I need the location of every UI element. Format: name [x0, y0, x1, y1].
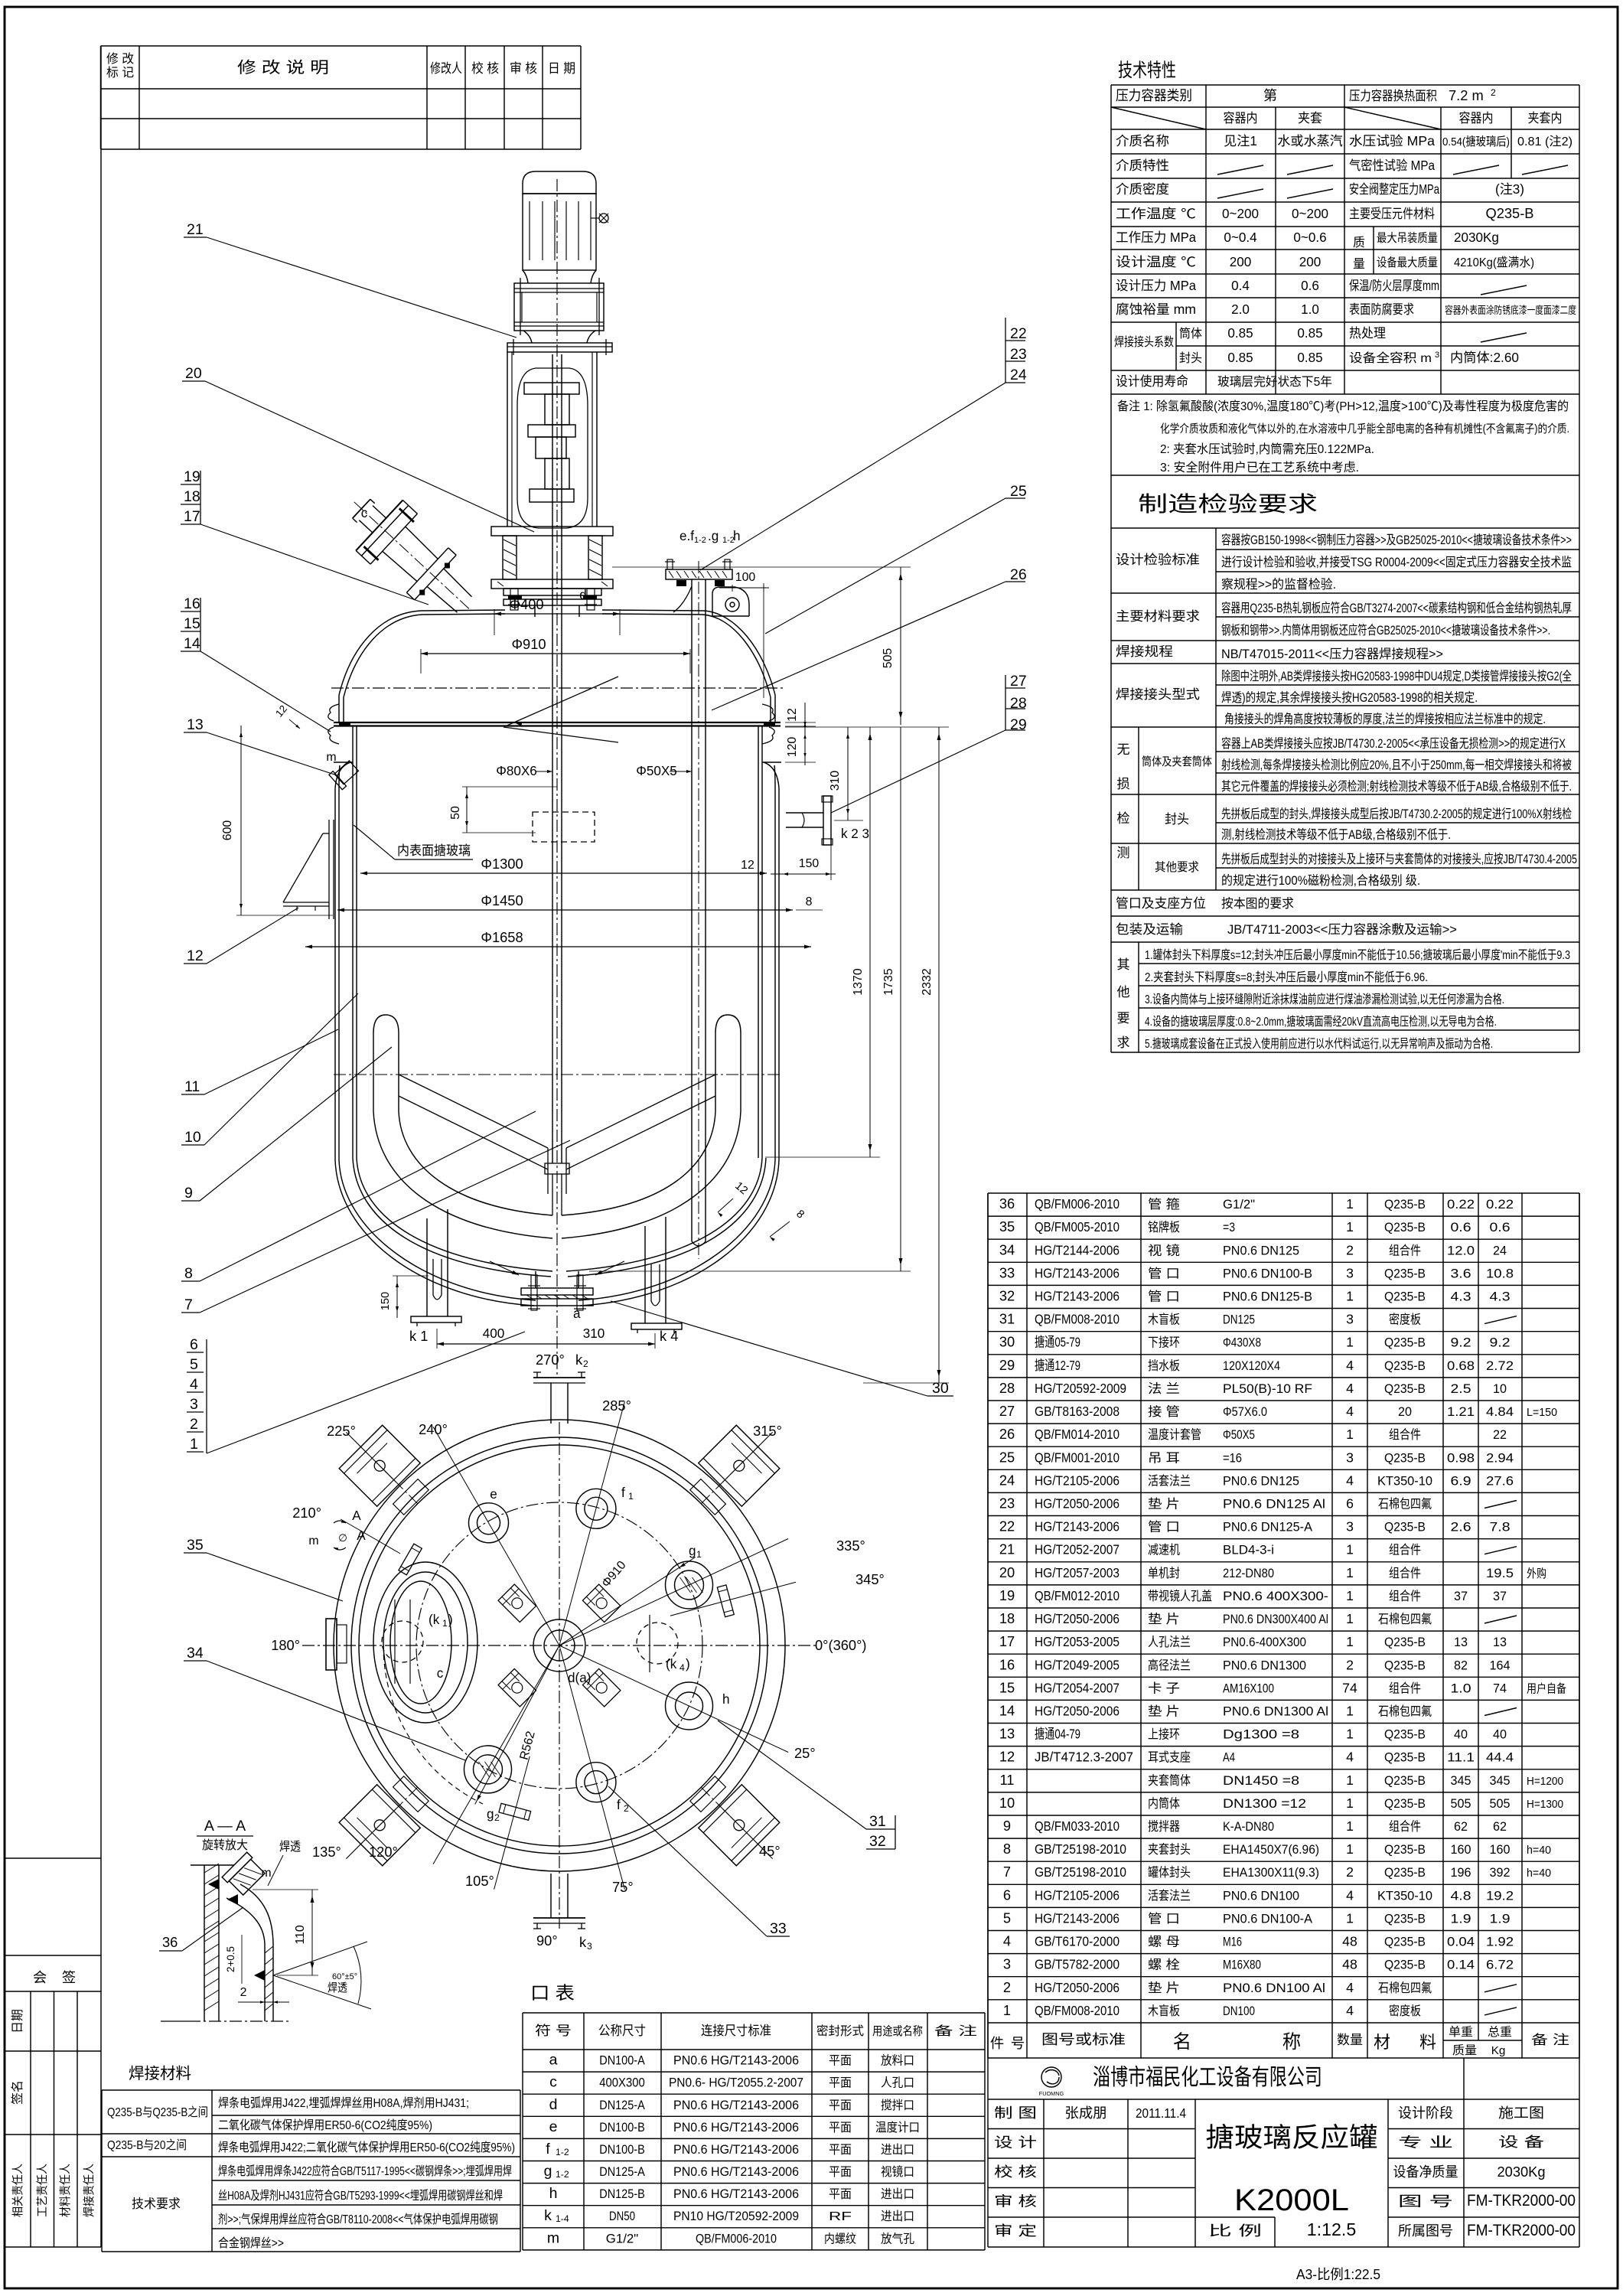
svg-text:A4: A4: [1223, 1751, 1235, 1765]
svg-text:减速机: 减速机: [1148, 1543, 1180, 1557]
svg-text:∅: ∅: [338, 1532, 347, 1544]
svg-text:25: 25: [999, 1449, 1015, 1465]
svg-text:平面: 平面: [829, 2122, 852, 2135]
svg-text:视 镜: 视 镜: [1148, 1243, 1180, 1257]
svg-text:Kg: Kg: [1491, 2044, 1506, 2057]
svg-text:焊接接头系数: 焊接接头系数: [1114, 335, 1174, 349]
svg-text:1: 1: [1346, 1289, 1354, 1304]
svg-text:DN125-A: DN125-A: [599, 2099, 645, 2112]
svg-text:g: g: [487, 1807, 494, 1821]
svg-text:筒体: 筒体: [1179, 327, 1202, 341]
svg-text:6.72: 6.72: [1486, 1958, 1514, 1972]
svg-text:3.设备内筒体与上接环缝隙附近涂抹煤油前应进行煤油渗漏检测试: 3.设备内筒体与上接环缝隙附近涂抹煤油前应进行煤油渗漏检测试验,以无任何渗漏为合…: [1145, 992, 1504, 1006]
svg-text:3: 3: [1346, 1519, 1354, 1534]
svg-text:3: 3: [1346, 1312, 1354, 1327]
svg-text:平面: 平面: [829, 2188, 852, 2201]
svg-text:345: 345: [1451, 1774, 1471, 1788]
svg-text:号: 号: [1011, 2035, 1025, 2051]
svg-text:18: 18: [999, 1610, 1015, 1626]
svg-text:HG/T20592-2009: HG/T20592-2009: [1035, 1381, 1126, 1396]
svg-text:审 定: 审 定: [994, 2223, 1037, 2239]
svg-text:施工图: 施工图: [1498, 2105, 1544, 2121]
svg-text:0.14: 0.14: [1447, 1958, 1475, 1972]
svg-text:标 记: 标 记: [106, 66, 134, 80]
svg-text:人孔法兰: 人孔法兰: [1148, 1635, 1191, 1649]
svg-text:Q235-B: Q235-B: [1384, 1198, 1426, 1212]
svg-text:0.6: 0.6: [1301, 279, 1319, 293]
svg-text:容器内: 容器内: [1459, 111, 1494, 126]
svg-text:活套法兰: 活套法兰: [1148, 1473, 1191, 1488]
svg-text:h: h: [549, 2185, 558, 2202]
svg-text:4: 4: [1346, 1750, 1354, 1765]
svg-text:0.98: 0.98: [1447, 1451, 1475, 1465]
svg-text:210°: 210°: [292, 1505, 321, 1521]
svg-text:内螺纹: 内螺纹: [824, 2232, 856, 2245]
svg-text:张成朋: 张成朋: [1065, 2105, 1107, 2121]
svg-text:1-4: 1-4: [556, 2213, 569, 2224]
svg-text:0~200: 0~200: [1222, 207, 1259, 221]
svg-text:4210Kg(盛满水): 4210Kg(盛满水): [1454, 256, 1534, 269]
svg-text:50: 50: [449, 806, 462, 820]
svg-text:2332: 2332: [921, 968, 934, 996]
svg-text:4.3: 4.3: [1490, 1290, 1511, 1304]
svg-text:管口及支座方位: 管口及支座方位: [1116, 896, 1206, 911]
svg-text:NB/T47015-2011<<压力容器焊接规程>>: NB/T47015-2011<<压力容器焊接规程>>: [1221, 647, 1443, 661]
svg-text:管 口: 管 口: [1148, 1912, 1180, 1926]
svg-text:HG/T2143-2006: HG/T2143-2006: [1035, 1289, 1119, 1304]
svg-text:设计阶段: 设计阶段: [1398, 2105, 1453, 2121]
svg-text:6: 6: [190, 1336, 198, 1353]
svg-text:制 图: 制 图: [994, 2105, 1037, 2121]
svg-text:连接尺寸标准: 连接尺寸标准: [701, 2024, 771, 2038]
svg-text:组合件: 组合件: [1389, 1243, 1421, 1257]
svg-text:专 业: 专 业: [1398, 2135, 1453, 2151]
svg-text:27.6: 27.6: [1486, 1474, 1514, 1488]
svg-text:160: 160: [1490, 1843, 1511, 1857]
svg-text:1.9: 1.9: [1451, 1913, 1471, 1926]
svg-text:介质名称: 介质名称: [1116, 134, 1169, 148]
svg-text:PN0.6 HG/T2143-2006: PN0.6 HG/T2143-2006: [673, 2054, 799, 2068]
svg-text:1: 1: [1346, 1818, 1354, 1834]
svg-text:先拼板后成型的封头,焊接接头成型后按JB/T4730.2-2: 先拼板后成型的封头,焊接接头成型后按JB/T4730.2-2005的规定进行10…: [1221, 807, 1572, 821]
svg-text:110: 110: [294, 1925, 307, 1944]
svg-text:水压试验 MPa: 水压试验 MPa: [1349, 134, 1435, 148]
svg-text:介质密度: 介质密度: [1116, 182, 1169, 197]
svg-text:设备最大质量: 设备最大质量: [1377, 256, 1438, 269]
svg-text:QB/FM014-2010: QB/FM014-2010: [1035, 1427, 1119, 1442]
svg-text:高径法兰: 高径法兰: [1148, 1658, 1191, 1672]
svg-text:8: 8: [1003, 1841, 1011, 1857]
svg-text:0~0.6: 0~0.6: [1293, 230, 1326, 245]
svg-text:36: 36: [162, 1934, 178, 1950]
svg-text:5: 5: [1003, 1910, 1011, 1926]
svg-text:1: 1: [442, 1618, 448, 1629]
svg-text:Q235-B: Q235-B: [1384, 1936, 1426, 1949]
svg-text:2: 2: [240, 1986, 247, 1999]
svg-text:搪通05-79: 搪通05-79: [1035, 1335, 1080, 1350]
svg-text:组合件: 组合件: [1389, 1589, 1421, 1603]
svg-text:DN50: DN50: [609, 2210, 635, 2223]
svg-text:d(a): d(a): [568, 1671, 591, 1685]
svg-text:石棉包四氟: 石棉包四氟: [1378, 1981, 1432, 1995]
svg-text:搅拌口: 搅拌口: [881, 2099, 914, 2112]
svg-text:h=40: h=40: [1527, 1867, 1551, 1880]
svg-text:33: 33: [999, 1264, 1015, 1280]
svg-text:345: 345: [1490, 1774, 1511, 1788]
svg-text:合金钢焊丝>>: 合金钢焊丝>>: [218, 2236, 284, 2250]
svg-text:察规程>>的监督检验.: 察规程>>的监督检验.: [1221, 577, 1336, 592]
svg-text:Q235-B: Q235-B: [1384, 1797, 1426, 1811]
svg-text:木盲板: 木盲板: [1148, 1313, 1180, 1327]
svg-text:17: 17: [999, 1633, 1015, 1649]
svg-text:GB/T6170-2000: GB/T6170-2000: [1035, 1934, 1119, 1949]
svg-text:k: k: [575, 1352, 583, 1368]
svg-text:(注3): (注3): [1495, 182, 1524, 197]
svg-text:HG/T2050-2006: HG/T2050-2006: [1035, 1496, 1119, 1512]
svg-text:他: 他: [1116, 985, 1129, 1000]
svg-text:Φ910: Φ910: [511, 636, 546, 652]
svg-text:Q235-B: Q235-B: [1384, 1221, 1426, 1234]
svg-text:搪通12-79: 搪通12-79: [1035, 1358, 1080, 1373]
svg-text:Φ1450: Φ1450: [481, 892, 523, 908]
svg-text:c: c: [437, 1666, 444, 1681]
svg-text:见注1: 见注1: [1224, 134, 1257, 148]
svg-text:44.4: 44.4: [1486, 1751, 1514, 1765]
svg-text:H=1300: H=1300: [1527, 1798, 1563, 1811]
svg-text:比 例: 比 例: [1208, 2223, 1262, 2239]
svg-text:345°: 345°: [855, 1571, 885, 1587]
svg-text:带视镜人孔盖: 带视镜人孔盖: [1148, 1589, 1212, 1603]
svg-text:19: 19: [184, 468, 200, 485]
svg-text:16: 16: [999, 1656, 1015, 1672]
svg-text:用途或名称: 用途或名称: [872, 2025, 923, 2038]
svg-text:13: 13: [999, 1726, 1015, 1742]
svg-text:2.0: 2.0: [1231, 302, 1250, 317]
svg-text:82: 82: [1454, 1658, 1468, 1672]
svg-text:HG/T2105-2006: HG/T2105-2006: [1035, 1887, 1119, 1903]
svg-text:2: 2: [1491, 87, 1496, 98]
svg-text:4: 4: [1346, 1473, 1354, 1488]
svg-text:PN0.6 DN1300: PN0.6 DN1300: [1223, 1658, 1306, 1672]
svg-text:Q235-B: Q235-B: [1384, 1336, 1426, 1350]
svg-text:10: 10: [1493, 1382, 1507, 1396]
svg-text:0.4: 0.4: [1231, 279, 1250, 293]
svg-text:焊接材料: 焊接材料: [129, 2065, 191, 2082]
svg-text:19.2: 19.2: [1486, 1889, 1514, 1903]
svg-text:夹套内: 夹套内: [1528, 111, 1563, 126]
svg-text:4.设备的搪玻璃层厚度:0.8~2.0mm,搪玻璃面需经20: 4.设备的搪玻璃层厚度:0.8~2.0mm,搪玻璃面需经20kV直流高电压检测,…: [1145, 1015, 1497, 1029]
svg-text:气密性试验 MPa: 气密性试验 MPa: [1349, 158, 1435, 173]
svg-text:Φ50X5: Φ50X5: [1223, 1428, 1255, 1442]
svg-text:21: 21: [187, 221, 204, 238]
svg-text:3.6: 3.6: [1451, 1267, 1471, 1280]
svg-text:k: k: [579, 1934, 587, 1950]
svg-text:管 口: 管 口: [1148, 1520, 1180, 1534]
svg-text:其: 其: [1116, 957, 1129, 972]
svg-text:技术要求: 技术要求: [132, 2197, 181, 2211]
svg-text:DN125-B: DN125-B: [599, 2187, 645, 2201]
svg-text:QB/FM012-2010: QB/FM012-2010: [1035, 1588, 1119, 1603]
svg-text:1: 1: [1346, 1795, 1354, 1811]
svg-text:1: 1: [1346, 1565, 1354, 1580]
svg-text:法 兰: 法 兰: [1148, 1381, 1180, 1396]
svg-text:1: 1: [190, 1436, 198, 1453]
svg-text:5.搪玻璃成套设备在正式投入使用前应进行以水代料试运行,以无: 5.搪玻璃成套设备在正式投入使用前应进行以水代料试运行,以无异常响声及振动为合格…: [1145, 1036, 1493, 1051]
svg-text:=16: =16: [1223, 1451, 1242, 1465]
svg-text:23: 23: [1010, 346, 1027, 363]
svg-text:进出口: 进出口: [881, 2187, 914, 2201]
svg-text:1: 1: [1346, 1427, 1354, 1442]
svg-text:1: 1: [1346, 1773, 1354, 1788]
svg-text:h=40: h=40: [1527, 1844, 1551, 1857]
svg-text:0.85: 0.85: [1227, 326, 1253, 341]
svg-text:M16X80: M16X80: [1223, 1958, 1261, 1972]
svg-text:0~0.4: 0~0.4: [1224, 230, 1256, 245]
svg-text:23: 23: [999, 1495, 1015, 1512]
svg-text:6: 6: [1346, 1496, 1354, 1512]
svg-text:32: 32: [869, 1833, 886, 1850]
svg-text:60°±5°: 60°±5°: [332, 1972, 357, 1981]
svg-text:d: d: [579, 588, 587, 602]
svg-text:DN100-B: DN100-B: [599, 2121, 645, 2135]
svg-text:4: 4: [1346, 1404, 1354, 1419]
svg-text:19: 19: [999, 1587, 1015, 1603]
svg-text:74: 74: [1493, 1681, 1507, 1695]
svg-text:焊条电弧焊用J422,埋弧焊焊丝用H08A,焊剂用HJ431: 焊条电弧焊用J422,埋弧焊焊丝用H08A,焊剂用HJ431;: [218, 2096, 469, 2110]
svg-text:DN125-A: DN125-A: [599, 2165, 645, 2179]
svg-text:备 注: 备 注: [934, 2024, 977, 2038]
svg-text:11: 11: [184, 1078, 200, 1095]
svg-text:150: 150: [799, 857, 820, 870]
svg-text:HG/T2053-2005: HG/T2053-2005: [1035, 1634, 1119, 1649]
svg-text:G1/2": G1/2": [606, 2232, 639, 2245]
svg-text:1-2: 1-2: [556, 2169, 569, 2180]
svg-text:34: 34: [999, 1241, 1015, 1257]
svg-text:g: g: [689, 1544, 696, 1558]
svg-text:22: 22: [1493, 1428, 1507, 1442]
svg-text:GB/T5782-2000: GB/T5782-2000: [1035, 1957, 1119, 1972]
svg-text:1.0: 1.0: [1301, 302, 1319, 317]
svg-text:PN0.6 DN1300 Al: PN0.6 DN1300 Al: [1223, 1705, 1328, 1719]
svg-text:焊条电弧焊用焊条J422应符合GB/T5117-1995<<: 焊条电弧焊用焊条J422应符合GB/T5117-1995<<碳钢焊条>>;埋弧焊…: [218, 2164, 512, 2178]
svg-text:e: e: [490, 1487, 497, 1502]
svg-text:505: 505: [1451, 1797, 1471, 1811]
svg-text:k: k: [544, 2207, 552, 2224]
svg-text:1: 1: [1346, 1841, 1354, 1857]
svg-text:用户自备: 用户自备: [1527, 1682, 1566, 1695]
svg-text:3: 3: [587, 1941, 592, 1952]
svg-text:30: 30: [999, 1334, 1015, 1350]
svg-text:测,射线检测技术等级不低于AB级,合格级别不低于.: 测,射线检测技术等级不低于AB级,合格级别不低于.: [1221, 827, 1451, 842]
svg-text:放气孔: 放气孔: [881, 2232, 914, 2245]
svg-text:1.0: 1.0: [1451, 1681, 1471, 1695]
svg-text:1: 1: [1346, 1727, 1354, 1742]
svg-text:FM-TKR2000-00: FM-TKR2000-00: [1467, 2221, 1576, 2239]
svg-text:0.54(搪玻璃后): 0.54(搪玻璃后): [1442, 135, 1510, 148]
svg-text:33: 33: [770, 1920, 787, 1937]
svg-text:HG/T2054-2007: HG/T2054-2007: [1035, 1680, 1119, 1695]
svg-text:7.8: 7.8: [1490, 1521, 1511, 1534]
svg-text:c: c: [549, 2074, 557, 2091]
svg-text:测: 测: [1116, 846, 1129, 860]
svg-text:225°: 225°: [327, 1423, 356, 1439]
svg-text:270°: 270°: [536, 1352, 565, 1368]
svg-text:A3-比例1:22.5: A3-比例1:22.5: [1296, 2266, 1380, 2282]
svg-text:先拼板后成型封头的对接接头及上接环与夹套筒体的对接接头,应按: 先拼板后成型封头的对接接头及上接环与夹套筒体的对接接头,应按JB/T4730.4…: [1221, 852, 1577, 866]
svg-text:Φ80X6: Φ80X6: [496, 764, 537, 778]
svg-text:19.5: 19.5: [1486, 1567, 1514, 1580]
svg-text:GB/T8163-2008: GB/T8163-2008: [1035, 1404, 1119, 1419]
svg-text:EHA1300X11(9.3): EHA1300X11(9.3): [1223, 1866, 1319, 1880]
svg-text:称: 称: [1282, 2032, 1301, 2053]
svg-text:7: 7: [184, 1296, 193, 1313]
svg-text:285°: 285°: [602, 1397, 631, 1414]
svg-text:27: 27: [999, 1403, 1015, 1419]
svg-text:20: 20: [999, 1564, 1015, 1580]
svg-text:PN0.6-400X300: PN0.6-400X300: [1223, 1636, 1306, 1649]
svg-text:DN1300 =12: DN1300 =12: [1223, 1797, 1306, 1811]
svg-text:组合件: 组合件: [1389, 1427, 1421, 1442]
svg-text:1370: 1370: [852, 968, 865, 996]
svg-text:工作压力 MPa: 工作压力 MPa: [1116, 230, 1196, 245]
svg-text:9: 9: [184, 1185, 193, 1202]
svg-text:120: 120: [786, 737, 799, 758]
svg-text:筒体及夹套筒体: 筒体及夹套筒体: [1142, 755, 1212, 768]
svg-text:2: 2: [1346, 1657, 1354, 1672]
svg-text:28: 28: [999, 1380, 1015, 1396]
svg-text:12: 12: [999, 1749, 1015, 1765]
svg-text:90°: 90°: [536, 1932, 558, 1949]
svg-text:DN100: DN100: [1223, 2004, 1255, 2018]
svg-text:Q235-B: Q235-B: [1384, 1751, 1426, 1765]
svg-text:焊接接头型式: 焊接接头型式: [1116, 687, 1200, 702]
svg-text:所属图号: 所属图号: [1398, 2223, 1453, 2239]
svg-text:HG/T2144-2006: HG/T2144-2006: [1035, 1242, 1119, 1257]
svg-text:9.2: 9.2: [1451, 1336, 1471, 1350]
svg-text:图 号: 图 号: [1398, 2193, 1453, 2210]
svg-text:JB/T4711-2003<<压力容器涂敷及运输>>: JB/T4711-2003<<压力容器涂敷及运输>>: [1227, 922, 1457, 937]
svg-text:设计使用寿命: 设计使用寿命: [1116, 373, 1188, 389]
svg-text:8: 8: [184, 1265, 193, 1282]
svg-text:27: 27: [1010, 673, 1027, 690]
svg-text:15: 15: [184, 615, 200, 632]
svg-text:焊条电弧焊用J422;二氧化碳气体保护焊用ER50-6(CO: 焊条电弧焊用J422;二氧化碳气体保护焊用ER50-6(CO2纯度95%): [218, 2141, 515, 2154]
svg-text:钢板和钢带>>.内筒体用钢板还应符合GB25025-2010: 钢板和钢带>>.内筒体用钢板还应符合GB25025-2010<<搪玻璃设备技术条…: [1221, 623, 1550, 638]
svg-text:石棉包四氟: 石棉包四氟: [1378, 1497, 1432, 1512]
svg-text:人孔口: 人孔口: [881, 2076, 914, 2090]
svg-text:10: 10: [184, 1129, 201, 1146]
svg-text:化学介质妆质和液化气体以外的,在水溶液中几乎能全部电离的各种: 化学介质妆质和液化气体以外的,在水溶液中几乎能全部电离的各种有机摊性(不含氟离子…: [1160, 422, 1569, 435]
svg-text:HG/T2052-2007: HG/T2052-2007: [1035, 1542, 1119, 1557]
svg-text:48: 48: [1342, 1957, 1357, 1972]
svg-text:1: 1: [1346, 1588, 1354, 1603]
svg-text:4.8: 4.8: [1451, 1889, 1471, 1903]
svg-text:180°: 180°: [271, 1637, 300, 1653]
svg-text:400: 400: [483, 1326, 505, 1341]
svg-text:Q235-B: Q235-B: [1384, 1728, 1426, 1742]
svg-text:质量: 质量: [1452, 2044, 1477, 2057]
svg-text:制造检验要求: 制造检验要求: [1138, 492, 1318, 516]
svg-text:Q235-B: Q235-B: [1384, 1774, 1426, 1788]
svg-text:其他要求: 其他要求: [1155, 861, 1199, 874]
svg-text:设计压力 MPa: 设计压力 MPa: [1116, 279, 1196, 293]
svg-text:150: 150: [380, 1292, 392, 1310]
svg-text:Q235-B: Q235-B: [1384, 1958, 1426, 1972]
svg-text:21: 21: [999, 1541, 1015, 1557]
svg-text:1.罐体封头下料厚度s=12;封头冲压后最小厚度min不能低: 1.罐体封头下料厚度s=12;封头冲压后最小厚度min不能低于10.56;搪玻璃…: [1145, 948, 1570, 962]
svg-text:): ): [448, 1613, 453, 1627]
svg-text:310: 310: [829, 771, 842, 791]
svg-text:JB/T4712.3-2007: JB/T4712.3-2007: [1035, 1750, 1133, 1765]
svg-text:内表面搪玻璃: 内表面搪玻璃: [397, 843, 471, 858]
svg-text:2.72: 2.72: [1486, 1359, 1514, 1373]
svg-text:罐体封头: 罐体封头: [1148, 1865, 1191, 1880]
svg-text:2.夹套封头下料厚度s=8;封头冲压后最小厚度min不能低于: 2.夹套封头下料厚度s=8;封头冲压后最小厚度min不能低于6.96.: [1145, 970, 1428, 984]
svg-text:PN0.6 DN100 Al: PN0.6 DN100 Al: [1223, 1981, 1325, 1995]
svg-text:0.6: 0.6: [1451, 1221, 1471, 1234]
svg-text:g: g: [544, 2163, 552, 2180]
svg-text:4: 4: [1346, 1980, 1354, 1995]
svg-text:二氧化碳气体保护焊用ER50-6(CO2纯度95%): 二氧化碳气体保护焊用ER50-6(CO2纯度95%): [218, 2118, 432, 2132]
svg-text:进出口: 进出口: [881, 2143, 914, 2157]
svg-text:2: 2: [1003, 1979, 1011, 1995]
svg-text:求: 求: [1116, 1035, 1129, 1050]
svg-text:m: m: [326, 751, 336, 764]
svg-text:管 口: 管 口: [1148, 1266, 1180, 1280]
svg-text:内筒体:2.60: 内筒体:2.60: [1450, 351, 1519, 365]
svg-text:1:12.5: 1:12.5: [1307, 2219, 1356, 2239]
svg-text:0.6: 0.6: [1490, 1221, 1511, 1234]
svg-text:1: 1: [1346, 1911, 1354, 1926]
svg-text:吊 耳: 吊 耳: [1148, 1451, 1180, 1465]
svg-text:25: 25: [1010, 483, 1027, 500]
svg-text:505: 505: [1490, 1797, 1511, 1811]
svg-text:310: 310: [583, 1326, 605, 1341]
svg-text:设备全容积 m: 设备全容积 m: [1349, 351, 1432, 365]
svg-text:组合件: 组合件: [1389, 1543, 1421, 1557]
svg-text:164: 164: [1490, 1658, 1511, 1672]
svg-text:焊透: 焊透: [328, 1981, 347, 1994]
svg-text:0°(360°): 0°(360°): [815, 1637, 866, 1653]
svg-text:设计检验标准: 设计检验标准: [1116, 553, 1200, 567]
svg-text:35: 35: [187, 1537, 204, 1554]
svg-text:卡 子: 卡 子: [1148, 1681, 1180, 1695]
svg-text:PN0.6 HG/T2143-2006: PN0.6 HG/T2143-2006: [673, 2165, 799, 2179]
svg-text:62: 62: [1454, 1820, 1468, 1834]
svg-text:无: 无: [1116, 742, 1129, 757]
svg-text:PN0.6 DN125: PN0.6 DN125: [1223, 1474, 1299, 1488]
svg-text:2: 2: [494, 1812, 500, 1823]
svg-text:13: 13: [187, 716, 204, 733]
svg-text:37: 37: [1454, 1590, 1468, 1603]
svg-text:240°: 240°: [419, 1421, 448, 1437]
svg-text:签: 签: [62, 1969, 76, 1985]
svg-text:1735: 1735: [882, 968, 895, 996]
svg-text:1: 1: [696, 1549, 702, 1560]
svg-text:HG/T2050-2006: HG/T2050-2006: [1035, 1980, 1119, 1995]
svg-text:2: 2: [1346, 1864, 1354, 1880]
svg-text:k 1: k 1: [409, 1328, 428, 1344]
svg-text:0.85: 0.85: [1297, 326, 1322, 341]
svg-text:HG/T2057-2003: HG/T2057-2003: [1035, 1565, 1119, 1580]
svg-text:Φ1300: Φ1300: [481, 856, 523, 872]
svg-text:): ): [686, 1657, 690, 1671]
svg-text:24: 24: [1493, 1244, 1507, 1257]
svg-text:压力容器换热面积: 压力容器换热面积: [1349, 89, 1437, 103]
svg-text:水或水蒸汽: 水或水蒸汽: [1277, 134, 1342, 148]
svg-text:温度计口: 温度计口: [875, 2121, 920, 2135]
svg-text:容器外表面涂防锈底漆一度面漆二度: 容器外表面涂防锈底漆一度面漆二度: [1445, 304, 1576, 316]
